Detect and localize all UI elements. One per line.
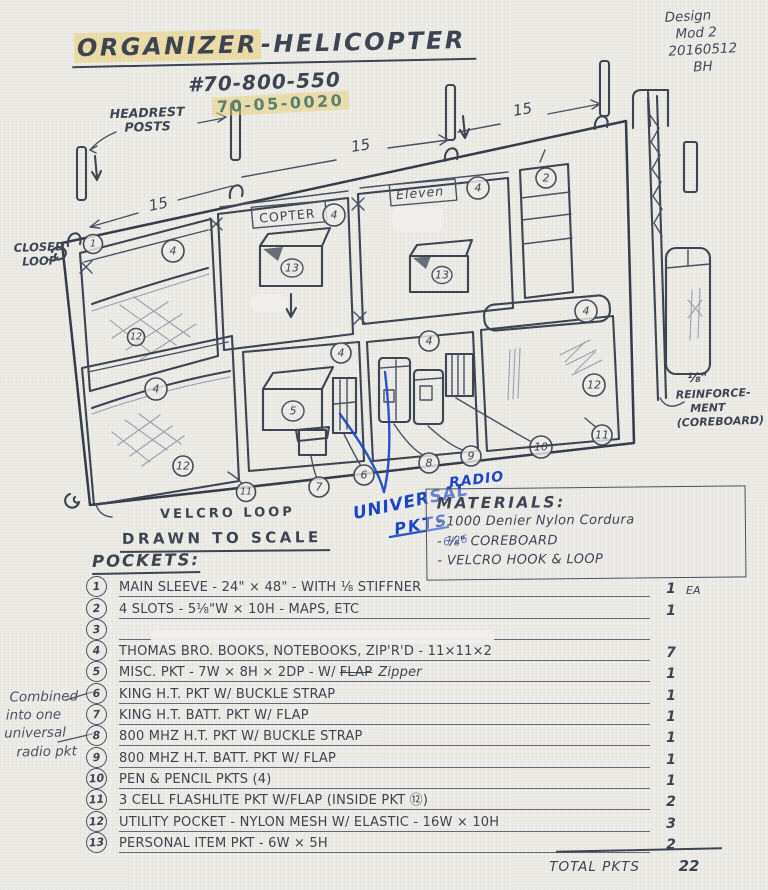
pocket-row-9: 9 800 MHZ H.T. BATT. PKT W/ FLAP 1 bbox=[86, 746, 712, 767]
materials-item: - VELCRO HOOK & LOOP bbox=[437, 548, 735, 571]
pocket-qty: 1 bbox=[656, 666, 686, 682]
scanned-sketch-page: 15 15 15 1 4 bbox=[0, 0, 768, 890]
pocket-number-badge: 13 bbox=[85, 831, 107, 853]
pocket-desc: MAIN SLEEVE - 24" × 48" - WITH ⅛ STIFFNE… bbox=[119, 580, 650, 597]
title-highlighted-word: ORGANIZER bbox=[74, 29, 262, 63]
badge-pocket-4: 4 bbox=[575, 300, 597, 322]
svg-text:6: 6 bbox=[361, 469, 368, 482]
velcro-loop-label: VELCRO LOOP bbox=[160, 505, 295, 522]
pocket-number-badge: 9 bbox=[85, 746, 107, 768]
pocket-qty: 1 bbox=[656, 709, 686, 725]
svg-text:13: 13 bbox=[435, 269, 449, 282]
pocket-desc: 800 MHZ H.T. PKT W/ BUCKLE STRAP bbox=[119, 729, 650, 746]
badge-pocket-7: 7 bbox=[309, 477, 329, 497]
pocket-desc: UTILITY POCKET - NYLON MESH W/ ELASTIC -… bbox=[119, 815, 650, 832]
dim-label-15-left: 15 bbox=[147, 193, 169, 215]
materials-box: MATERIALS: - 1000 Denier Nylon Cordura -… bbox=[426, 485, 747, 580]
pocket-misc-middle: 4 5 7 6 bbox=[243, 342, 374, 497]
badge-pocket-13: 13 bbox=[432, 267, 452, 284]
pocket-number-badge: 8 bbox=[85, 725, 107, 747]
drawn-to-scale-note: DRAWN TO SCALE bbox=[120, 528, 330, 553]
pocket-qty: 7 bbox=[656, 645, 686, 661]
badge-pocket-1: 1 bbox=[84, 235, 103, 254]
pocket-row-1: 1 MAIN SLEEVE - 24" × 48" - WITH ⅛ STIFF… bbox=[86, 576, 712, 597]
total-label: TOTAL PKTS bbox=[549, 859, 640, 875]
badge-pocket-11: 11 bbox=[592, 425, 612, 445]
pocket-desc: 4 SLOTS - 5⅛"W × 10H - MAPS, ETC bbox=[119, 602, 650, 619]
reinforcement-label: ⅛" REINFORCE- MENT (COREBOARD) bbox=[675, 368, 768, 431]
pocket-row-4: 4 THOMAS BRO. BOOKS, NOTEBOOKS, ZIP'R'D … bbox=[86, 640, 712, 661]
pocket-row-7: 7 KING H.T. BATT. PKT W/ FLAP 1 bbox=[86, 704, 712, 725]
badge-pocket-5: 5 bbox=[282, 401, 304, 421]
svg-text:11: 11 bbox=[240, 487, 252, 498]
svg-text:7: 7 bbox=[316, 481, 323, 494]
pocket-qty: 1 bbox=[656, 730, 686, 746]
pocket-desc: KING H.T. BATT. PKT W/ FLAP bbox=[119, 708, 650, 725]
pocket-row-5: 5 MISC. PKT - 7W × 8H × 2DP - W/FLAPZipp… bbox=[86, 661, 712, 682]
svg-text:4: 4 bbox=[170, 245, 177, 258]
badge-pocket-13: 13 bbox=[281, 259, 303, 277]
pocket-desc: 800 MHZ H.T. BATT. PKT W/ FLAP bbox=[119, 751, 650, 768]
pocket-number-badge: 6 bbox=[85, 682, 107, 704]
badge-pocket-4: 4 bbox=[162, 240, 184, 262]
headrest-posts-label: HEADREST POSTS bbox=[110, 105, 186, 136]
badge-pocket-4: 4 bbox=[331, 343, 351, 363]
pocket-qty: 1 bbox=[656, 773, 686, 789]
pocket-radio-panel: 4 8 9 10 bbox=[367, 331, 552, 473]
badge-pocket-2: 2 bbox=[536, 168, 556, 188]
whiteout-mark bbox=[150, 630, 495, 643]
svg-text:1: 1 bbox=[90, 239, 96, 250]
velcro-loop-leader bbox=[96, 504, 112, 517]
pocket-number-badge: 7 bbox=[85, 703, 107, 725]
pocket-number-badge: 3 bbox=[85, 618, 107, 640]
svg-text:12: 12 bbox=[130, 332, 142, 343]
pocket-qty-unit: EA bbox=[686, 584, 712, 597]
svg-text:5: 5 bbox=[290, 405, 297, 418]
svg-text:4: 4 bbox=[475, 182, 482, 195]
pocket-number-badge: 2 bbox=[85, 597, 107, 619]
svg-text:4: 4 bbox=[426, 335, 433, 348]
svg-text:4: 4 bbox=[338, 347, 345, 360]
pen-slot-pocket bbox=[446, 354, 473, 396]
svg-text:13: 13 bbox=[285, 262, 299, 275]
badge-pocket-6: 6 bbox=[354, 465, 374, 485]
pocket-number-badge: 1 bbox=[85, 576, 107, 598]
pocket-row-12: 12 UTILITY POCKET - NYLON MESH W/ ELASTI… bbox=[86, 810, 712, 831]
bottom-corner-loop bbox=[65, 494, 79, 508]
panel-copter: COPTER 4 13 bbox=[218, 191, 353, 350]
pocket-desc: KING H.T. PKT W/ BUCKLE STRAP bbox=[119, 687, 650, 704]
total-row: TOTAL PKTS 22 bbox=[86, 857, 712, 875]
badge-pocket-4: 4 bbox=[145, 378, 167, 400]
slot-column: 2 bbox=[520, 150, 573, 298]
svg-text:12: 12 bbox=[587, 379, 601, 392]
design-revision-note: Design Mod 2 20160512 BH bbox=[664, 6, 738, 77]
badge-pocket-9: 9 bbox=[461, 446, 481, 466]
whiteout-mark bbox=[392, 206, 444, 232]
panel-eleven: Eleven 4 13 bbox=[352, 172, 513, 324]
total-qty: 22 bbox=[666, 857, 712, 875]
pocket-number-badge: 5 bbox=[85, 661, 107, 683]
pockets-list-title: POCKETS: bbox=[92, 550, 200, 575]
pocket-row-2: 2 4 SLOTS - 5⅛"W × 10H - MAPS, ETC 1 bbox=[86, 597, 712, 618]
svg-text:4: 4 bbox=[331, 209, 338, 222]
pocket-desc: THOMAS BRO. BOOKS, NOTEBOOKS, ZIP'R'D - … bbox=[119, 644, 650, 661]
svg-text:12: 12 bbox=[176, 460, 190, 473]
svg-text:9: 9 bbox=[468, 450, 475, 463]
badge-pocket-12: 12 bbox=[173, 456, 193, 476]
margin-note-combined-pkt: Combined into one universal radio pkt bbox=[3, 687, 79, 761]
closed-loop-label: CLOSED LOOP bbox=[14, 239, 66, 270]
dim-label-15-right: 15 bbox=[512, 99, 534, 120]
svg-text:2: 2 bbox=[543, 172, 550, 185]
svg-text:8: 8 bbox=[426, 457, 433, 470]
pocket-row-8: 8 800 MHZ H.T. PKT W/ BUCKLE STRAP 1 bbox=[86, 725, 712, 746]
svg-text:4: 4 bbox=[153, 383, 160, 396]
badge-pocket-11: 11 bbox=[237, 483, 256, 502]
pocket-qty: 1 bbox=[656, 581, 686, 597]
map-crosshatch bbox=[110, 297, 196, 360]
badge-pocket-4: 4 bbox=[419, 331, 439, 351]
pocket-row-10: 10 PEN & PENCIL PKTS (4) 1 bbox=[86, 768, 712, 789]
svg-text:4: 4 bbox=[583, 305, 590, 318]
pocket-number-badge: 11 bbox=[85, 789, 107, 811]
pockets-list: 1 MAIN SLEEVE - 24" × 48" - WITH ⅛ STIFF… bbox=[86, 576, 712, 853]
pocket-qty: 1 bbox=[656, 752, 686, 768]
side-view-strip bbox=[633, 90, 710, 406]
pocket-qty: 1 bbox=[656, 688, 686, 704]
badge-pocket-8: 8 bbox=[419, 453, 439, 473]
pocket-number-badge: 10 bbox=[85, 767, 107, 789]
pocket-desc: 3 CELL FLASHLITE PKT W/FLAP (INSIDE PKT … bbox=[119, 789, 650, 810]
svg-text:11: 11 bbox=[595, 429, 609, 442]
pocket-qty: 1 bbox=[656, 603, 686, 619]
struck-word: FLAP bbox=[340, 665, 373, 680]
dim-label-15-middle: 15 bbox=[350, 135, 372, 156]
whiteout-mark bbox=[250, 294, 288, 312]
panel-upper-left: 1 4 12 bbox=[80, 218, 222, 391]
pocket-desc: PEN & PENCIL PKTS (4) bbox=[119, 772, 650, 789]
pocket-row-11: 11 3 CELL FLASHLITE PKT W/FLAP (INSIDE P… bbox=[86, 789, 712, 810]
pocket-qty: 3 bbox=[656, 816, 686, 832]
badge-pocket-4: 4 bbox=[323, 204, 345, 226]
badge-pocket-12: 12 bbox=[128, 329, 145, 346]
pocket-lower-right: 4 12 11 bbox=[481, 295, 619, 451]
pocket-number-badge: 4 bbox=[85, 639, 107, 661]
badge-pocket-12: 12 bbox=[583, 374, 605, 396]
badge-pocket-4: 4 bbox=[467, 177, 489, 199]
pocket-desc: MISC. PKT - 7W × 8H × 2DP - W/FLAPZipper bbox=[119, 665, 650, 682]
eleven-name-label: Eleven bbox=[395, 183, 444, 202]
pocket-number-badge: 12 bbox=[85, 810, 107, 832]
pocket-qty: 2 bbox=[656, 794, 686, 810]
mesh-crosshatch bbox=[112, 414, 184, 466]
pocket-row-6: 6 KING H.T. PKT W/ BUCKLE STRAP 1 bbox=[86, 682, 712, 703]
